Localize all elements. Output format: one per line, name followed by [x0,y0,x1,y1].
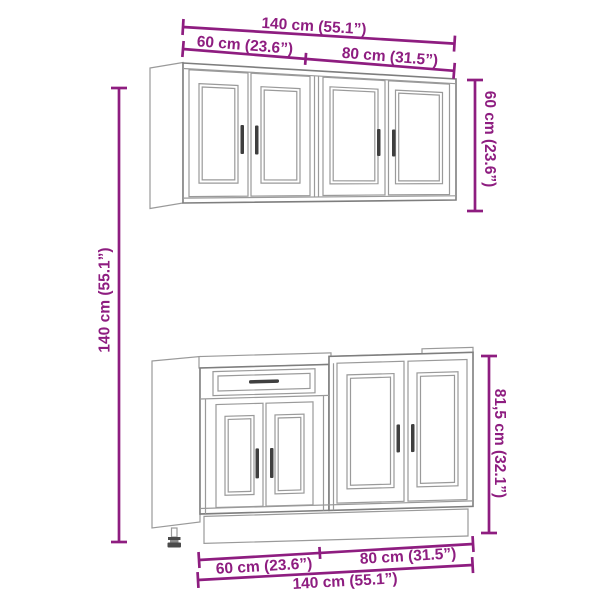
base-cabinet-side-panel [152,357,200,529]
dim-base-height-label: 81,5 cm (32.1”) [491,389,508,498]
base-cabinet-front [199,347,473,543]
wall-handle-left-2 [255,126,259,155]
wall-handle-left-1 [241,125,245,154]
wall-handle-right-1 [377,129,381,156]
plinth [204,509,468,543]
dim-wall-height-label: 60 cm (23.6”) [481,91,498,188]
base-handle-right-2 [411,424,415,452]
dim-overall-height-label: 140 cm (55.1”) [97,247,114,352]
dimension-diagram: 140 cm (55.1”) 60 cm (23.6”) 80 cm (31.5… [0,0,600,600]
cabinet-foot [168,528,182,548]
wall-cabinet-drawing [150,63,456,209]
base-handle-left-2 [270,448,274,478]
base-cabinet-drawing [152,347,473,547]
wall-cabinet-front [183,63,456,203]
wall-handle-right-2 [392,130,396,157]
wall-cabinet-side-panel [150,63,183,209]
dim-wall-height-line [467,80,483,211]
dim-wall-total-width-label: 140 cm (55.1”) [261,15,367,38]
base-handle-left-1 [256,448,260,478]
diagram-canvas: 140 cm (55.1”) 60 cm (23.6”) 80 cm (31.5… [0,0,600,600]
base-handle-right-1 [397,424,401,452]
